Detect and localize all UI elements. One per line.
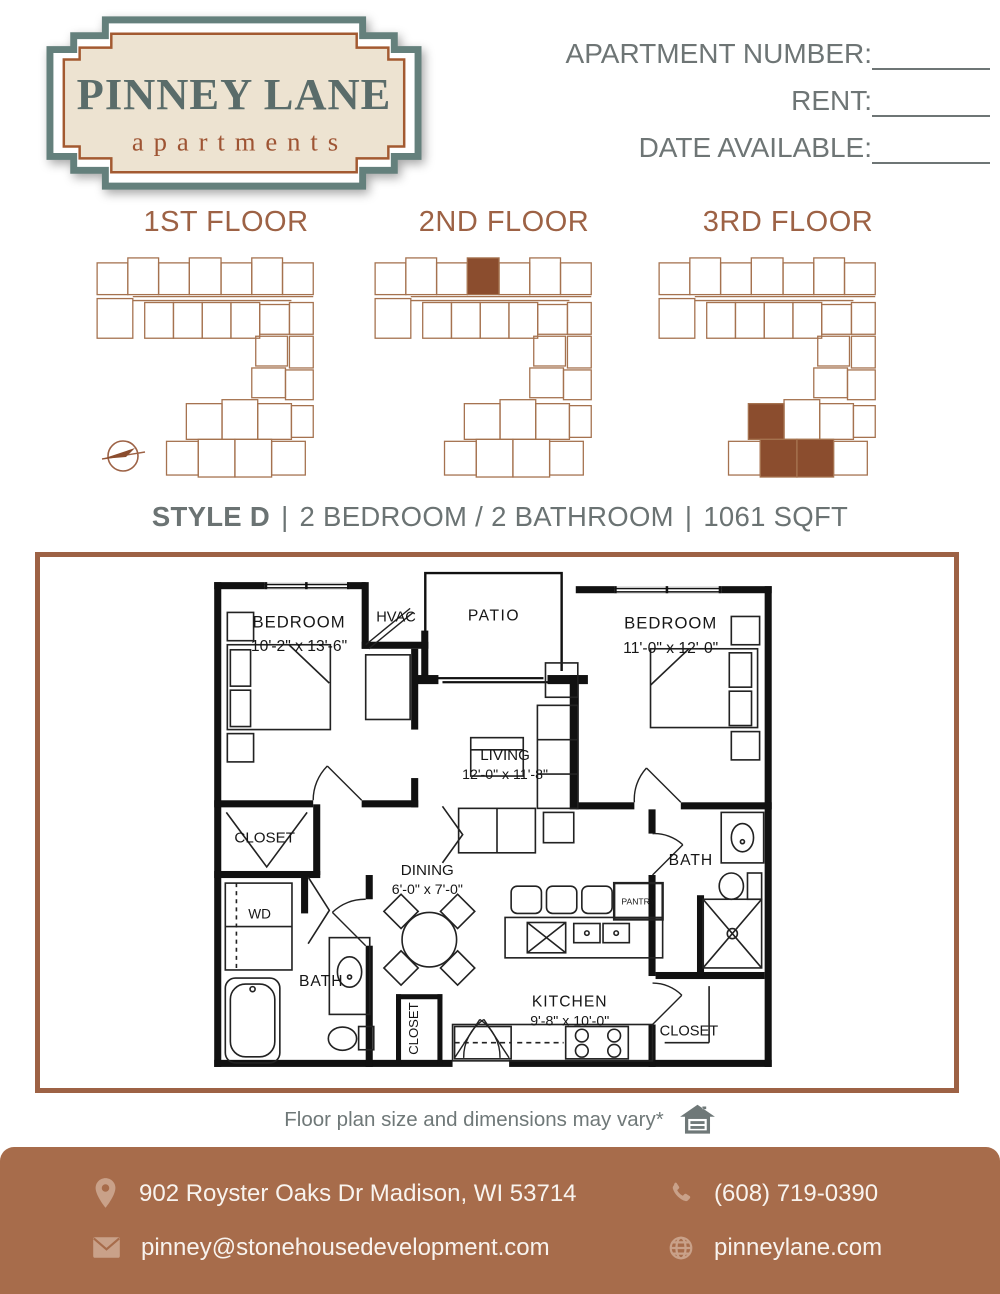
separator: | <box>674 501 703 532</box>
phone-text: (608) 719-0390 <box>714 1180 878 1208</box>
bed-icon-2 <box>651 616 760 759</box>
disclaimer-row: Floor plan size and dimensions may vary* <box>0 1104 1000 1135</box>
date-available-field: DATE AVAILABLE: <box>566 132 990 164</box>
rent-label: RENT: <box>791 85 872 116</box>
date-available-blank <box>872 136 990 164</box>
disclaimer-text: Floor plan size and dimensions may vary* <box>284 1108 663 1132</box>
email-row: pinney@stonehousedevelopment.com <box>92 1225 577 1270</box>
loveseat-icon <box>459 808 574 852</box>
kitchen-counter-icon <box>453 1025 653 1061</box>
rent-field: RENT: <box>566 85 990 117</box>
bifold-door-icon <box>308 877 329 944</box>
square-footage: 1061 SQFT <box>703 501 848 532</box>
room-label-entry-closet: CLOSET <box>406 1002 421 1055</box>
shower-icon <box>703 899 762 968</box>
apartment-number-label: APARTMENT NUMBER: <box>566 38 872 69</box>
room-label-bath-1: BATH <box>299 973 344 990</box>
third-floor-label: 3RD FLOOR <box>642 206 934 239</box>
website-text: pinneylane.com <box>714 1234 882 1262</box>
footer-right-column: (608) 719-0390 pinneylane.com <box>668 1171 882 1279</box>
room-dims-bedroom-1: 10'-2" x 13'-6" <box>251 638 347 655</box>
second-floor-column: 2ND FLOOR <box>358 206 650 484</box>
rent-blank <box>872 89 990 117</box>
toilet-icon-2 <box>719 873 761 899</box>
room-label-closet-2: CLOSET <box>660 1024 719 1040</box>
logo-name: PINNEY LANE <box>77 69 392 119</box>
highlighted-unit <box>797 439 834 477</box>
apartment-number-field: APARTMENT NUMBER: <box>566 38 990 70</box>
floor-plan-drawing: BEDROOM 10'-2" x 13'-6" HVAC PATIO BEDRO… <box>214 570 780 1075</box>
footer: 902 Royster Oaks Dr Madison, WI 53714 pi… <box>0 1147 1000 1294</box>
date-available-label: DATE AVAILABLE: <box>639 132 872 163</box>
third-floor-site-map <box>649 249 927 479</box>
footer-left-column: 902 Royster Oaks Dr Madison, WI 53714 pi… <box>92 1171 577 1279</box>
room-label-hvac: HVAC <box>376 610 416 626</box>
floor-plan-frame: BEDROOM 10'-2" x 13'-6" HVAC PATIO BEDRO… <box>35 552 959 1093</box>
apartment-number-blank <box>872 42 990 70</box>
room-label-bath-2: BATH <box>669 852 714 869</box>
room-label-pantry: PANTRY <box>621 896 655 906</box>
pinney-lane-logo: PINNEY LANE apartments <box>46 14 422 192</box>
room-dims-bedroom-2: 11'-0" x 12'-0" <box>623 640 718 657</box>
room-label-closet-1: CLOSET <box>234 830 295 847</box>
vanity-sink-icon-2 <box>721 812 763 863</box>
second-floor-site-map <box>365 249 643 479</box>
map-pin-icon <box>92 1177 119 1210</box>
email-text: pinney@stonehousedevelopment.com <box>141 1234 550 1262</box>
bed-bath-count: 2 BEDROOM / 2 BATHROOM <box>300 501 674 532</box>
compass-icon <box>100 432 148 480</box>
phone-icon <box>668 1181 694 1207</box>
phone-row: (608) 719-0390 <box>668 1171 882 1216</box>
window-icon <box>265 582 722 593</box>
address-row: 902 Royster Oaks Dr Madison, WI 53714 <box>92 1171 577 1216</box>
globe-icon <box>668 1235 694 1261</box>
room-label-bedroom-2: BEDROOM <box>624 614 717 633</box>
room-label-kitchen: KITCHEN <box>532 993 608 1010</box>
room-dims-living: 12'-0" x 11'-8" <box>462 766 548 782</box>
second-floor-label: 2ND FLOOR <box>358 206 650 239</box>
room-dims-dining: 6'-0" x 7'-0" <box>392 881 463 897</box>
style-summary: STYLE D|2 BEDROOM / 2 BATHROOM|1061 SQFT <box>0 501 1000 533</box>
wardrobe-icon <box>366 655 410 720</box>
equal-housing-icon <box>679 1104 716 1135</box>
third-floor-column: 3RD FLOOR <box>642 206 934 484</box>
room-dims-kitchen: 9'-8" x 10'-0" <box>530 1013 609 1029</box>
bed-icon-1 <box>227 612 330 761</box>
room-label-wd: WD <box>248 906 271 921</box>
first-floor-label: 1ST FLOOR <box>80 206 372 239</box>
website-row: pinneylane.com <box>668 1225 882 1270</box>
envelope-icon <box>92 1236 121 1259</box>
bathtub-icon <box>225 978 280 1063</box>
highlighted-unit <box>748 404 784 440</box>
patio-walls <box>425 573 561 683</box>
flyer-page: PINNEY LANE apartments APARTMENT NUMBER:… <box>0 0 1000 1294</box>
style-name: STYLE D <box>152 501 270 532</box>
room-label-bedroom-1: BEDROOM <box>252 613 345 632</box>
address-text: 902 Royster Oaks Dr Madison, WI 53714 <box>139 1180 577 1208</box>
washer-dryer-icon <box>225 883 292 970</box>
room-label-patio: PATIO <box>468 608 520 625</box>
dining-table-icon <box>384 894 475 985</box>
highlighted-unit <box>467 258 499 295</box>
room-label-dining: DINING <box>401 862 454 879</box>
room-label-living: LIVING <box>480 747 530 764</box>
logo-subtitle: apartments <box>132 126 348 156</box>
separator: | <box>270 501 299 532</box>
highlighted-unit <box>760 439 797 477</box>
bifold-door-icon <box>442 806 462 863</box>
header-fields: APARTMENT NUMBER: RENT: DATE AVAILABLE: <box>566 38 990 179</box>
